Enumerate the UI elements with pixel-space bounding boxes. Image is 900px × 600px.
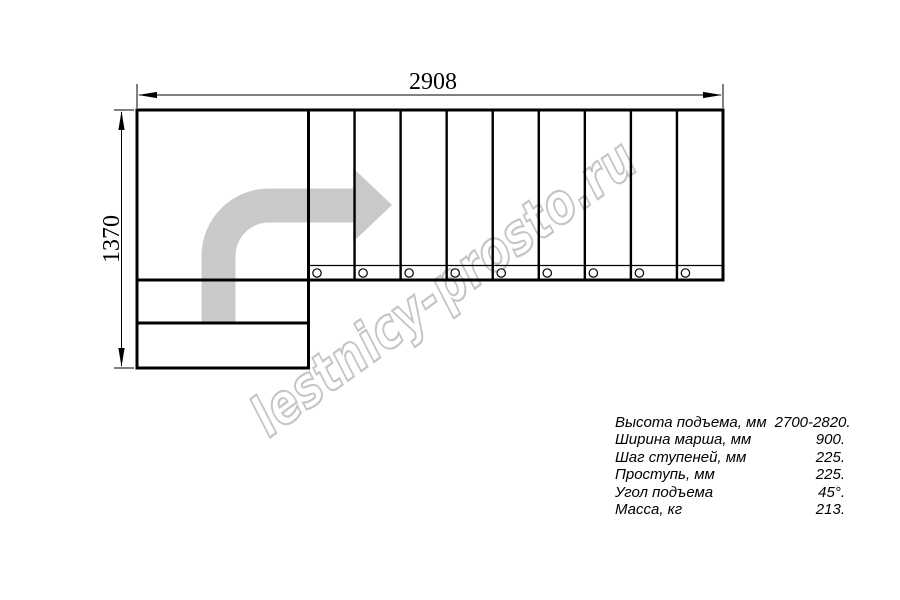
watermark-text: lestnicy-prosto.ru xyxy=(239,127,649,450)
dim-arrowhead-bottom xyxy=(118,348,124,367)
spec-value: 225. xyxy=(816,466,845,483)
tread-circles xyxy=(313,269,690,277)
spec-label: Высота подъема, мм xyxy=(615,414,767,431)
tread-fastener-circle xyxy=(589,269,597,277)
spec-label: Масса, кг xyxy=(615,501,682,518)
tread-fastener-circle xyxy=(313,269,321,277)
spec-label: Ширина марша, мм xyxy=(615,431,751,448)
spec-value: 225. xyxy=(816,449,845,466)
dim-arrowhead-right xyxy=(703,92,722,98)
spec-row-rise-height: Высота подъема, мм 2700-2820. xyxy=(615,414,845,431)
tread-fastener-circle xyxy=(635,269,643,277)
spec-value: 2700-2820. xyxy=(775,414,851,431)
spec-value: 45°. xyxy=(818,484,845,501)
spec-value: 213. xyxy=(816,501,845,518)
spec-table: Высота подъема, мм 2700-2820. Ширина мар… xyxy=(615,414,845,518)
direction-arrow xyxy=(202,168,393,323)
spec-label: Угол подъема xyxy=(615,484,713,501)
spec-label: Проступь, мм xyxy=(615,466,715,483)
spec-row-angle: Угол подъема 45°. xyxy=(615,484,845,501)
dim-arrowhead-left xyxy=(138,92,157,98)
dim-arrowhead-top xyxy=(118,111,124,130)
tread-fastener-circle xyxy=(543,269,551,277)
tread-fastener-circle xyxy=(359,269,367,277)
spec-row-mass: Масса, кг 213. xyxy=(615,501,845,518)
spec-value: 900. xyxy=(816,431,845,448)
stair-plan-page: lestnicy-prosto.ru 2908 xyxy=(0,0,900,600)
tread-fastener-circle xyxy=(681,269,689,277)
dim-height-label: 1370 xyxy=(99,215,125,263)
tread-fastener-circle xyxy=(405,269,413,277)
spec-row-tread: Проступь, мм 225. xyxy=(615,466,845,483)
spec-row-flight-width: Ширина марша, мм 900. xyxy=(615,431,845,448)
spec-label: Шаг ступеней, мм xyxy=(615,449,746,466)
dim-width-label: 2908 xyxy=(409,69,457,95)
tread-fastener-circle xyxy=(497,269,505,277)
tread-fastener-circle xyxy=(451,269,459,277)
spec-row-step-pitch: Шаг ступеней, мм 225. xyxy=(615,449,845,466)
